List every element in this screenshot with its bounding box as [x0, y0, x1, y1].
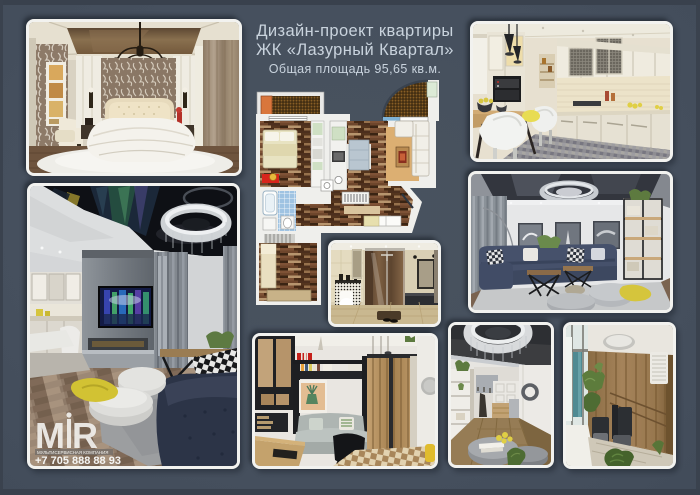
svg-text:+7 705 888 88 93: +7 705 888 88 93 — [35, 455, 121, 466]
